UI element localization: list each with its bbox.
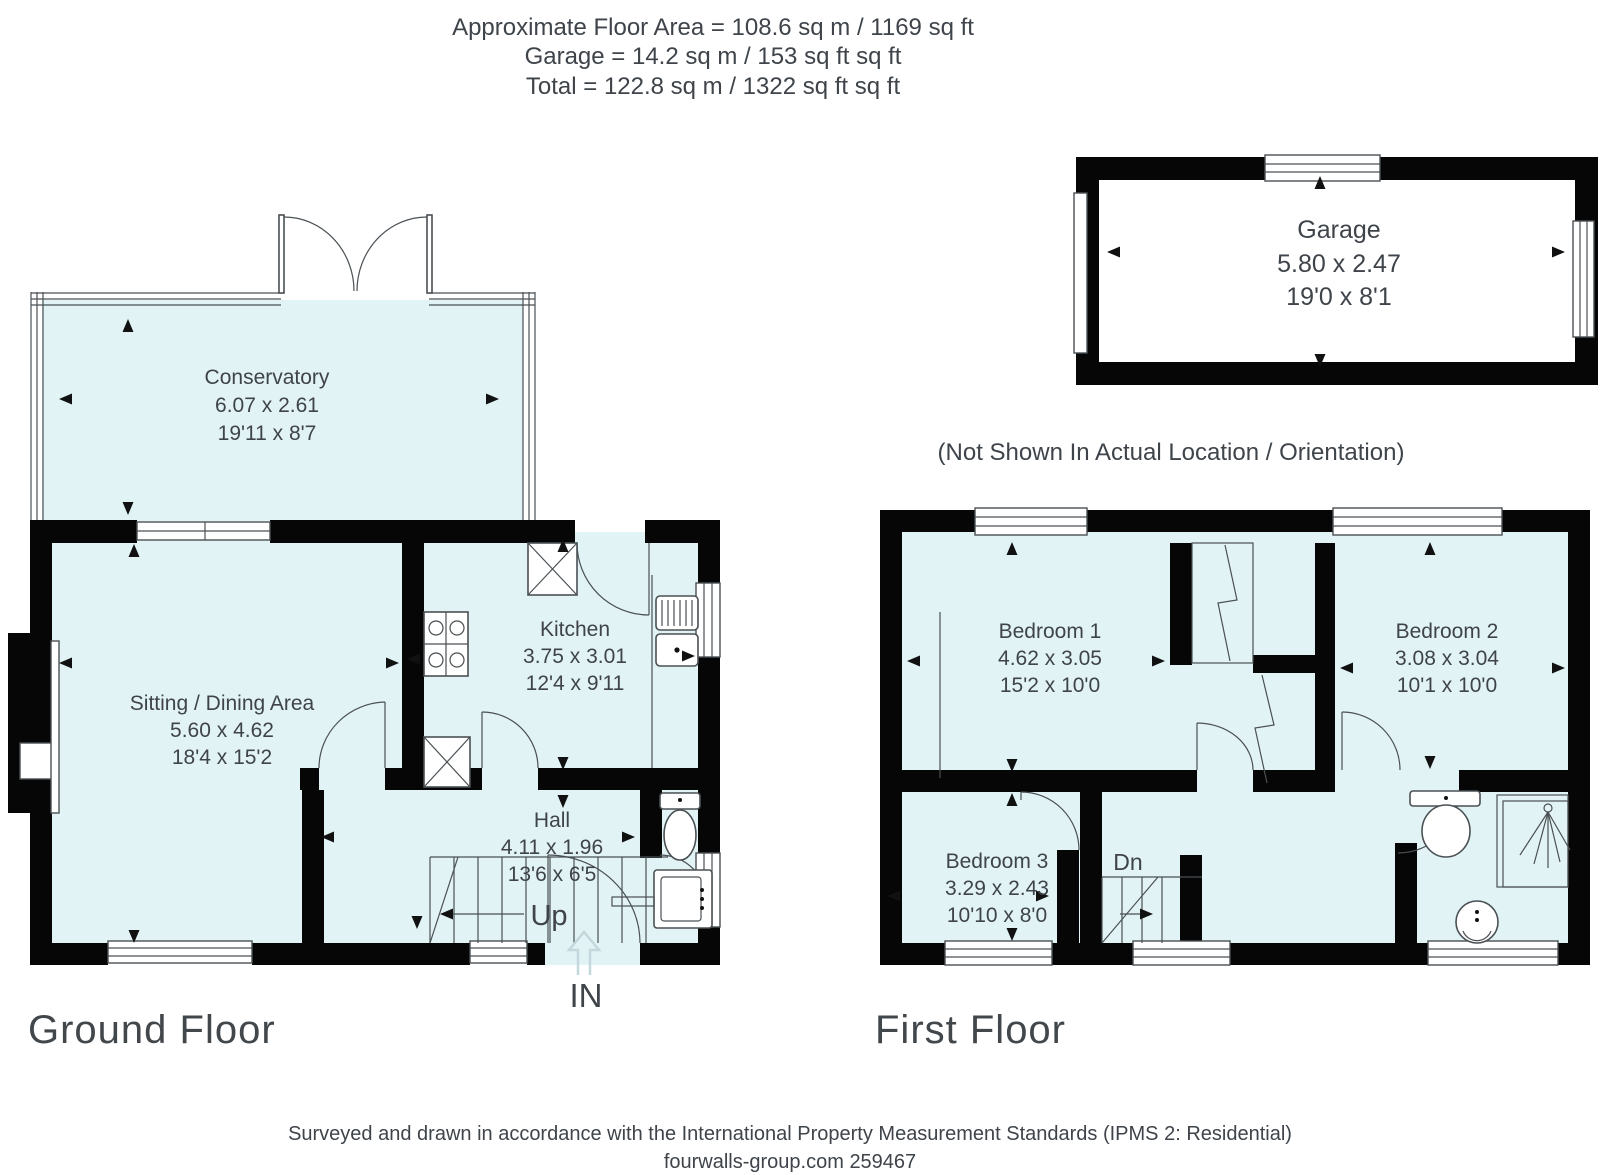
window bbox=[108, 941, 252, 963]
entrance-in-label: IN bbox=[570, 977, 603, 1014]
header-line1: Approximate Floor Area = 108.6 sq m / 11… bbox=[452, 14, 974, 41]
header-area-summary: Approximate Floor Area = 108.6 sq m / 11… bbox=[452, 14, 974, 100]
stairs-up-label: Up bbox=[530, 900, 567, 932]
dimension-arrow-icon bbox=[1552, 247, 1565, 258]
bedroom2-name: Bedroom 2 bbox=[1396, 620, 1499, 643]
sitting-name: Sitting / Dining Area bbox=[130, 692, 315, 715]
bedroom2-imperial-dims: 10'1 x 10'0 bbox=[1397, 674, 1497, 697]
conservatory-imperial-dims: 19'11 x 8'7 bbox=[218, 422, 317, 445]
window bbox=[975, 508, 1087, 535]
garage-plan: Garage 5.80 x 2.47 19'0 x 8'1 bbox=[1074, 155, 1598, 385]
hall-imperial-dims: 13'6 x 6'5 bbox=[508, 863, 597, 886]
entrance-threshold bbox=[545, 943, 640, 965]
window bbox=[1428, 941, 1558, 965]
french-doors bbox=[279, 215, 432, 293]
window bbox=[945, 941, 1052, 965]
conservatory-metric-dims: 6.07 x 2.61 bbox=[215, 394, 319, 417]
window bbox=[696, 583, 720, 657]
garage-window-right bbox=[1573, 221, 1594, 337]
stairs-down-label: Dn bbox=[1113, 849, 1142, 875]
garage-name: Garage bbox=[1297, 216, 1380, 244]
ground-floor-title: Ground Floor bbox=[28, 1008, 276, 1052]
garage-imperial-dims: 19'0 x 8'1 bbox=[1286, 283, 1391, 311]
window bbox=[470, 941, 527, 963]
hall-metric-dims: 4.11 x 1.96 bbox=[501, 836, 603, 859]
garage-wall-bottom bbox=[1076, 362, 1598, 385]
kitchen-name: Kitchen bbox=[540, 618, 610, 641]
hob-icon bbox=[424, 612, 468, 676]
footer: Surveyed and drawn in accordance with th… bbox=[288, 1123, 1292, 1173]
dimension-arrow-icon bbox=[1107, 247, 1120, 258]
cupboard-icon bbox=[424, 737, 470, 787]
basin-icon bbox=[1456, 901, 1498, 943]
garage-window-top bbox=[1265, 155, 1380, 181]
bedroom1-name: Bedroom 1 bbox=[999, 620, 1102, 643]
garage-metric-dims: 5.80 x 2.47 bbox=[1277, 250, 1401, 278]
footer-standards-line: Surveyed and drawn in accordance with th… bbox=[288, 1123, 1292, 1145]
conservatory-name: Conservatory bbox=[205, 366, 330, 389]
sitting-metric-dims: 5.60 x 4.62 bbox=[170, 719, 274, 742]
bedroom3-name: Bedroom 3 bbox=[946, 850, 1049, 873]
bedroom3-metric-dims: 3.29 x 2.43 bbox=[945, 877, 1049, 900]
bedroom3-imperial-dims: 10'10 x 8'0 bbox=[947, 904, 1047, 927]
header-line2: Garage = 14.2 sq m / 153 sq ft sq ft bbox=[525, 43, 902, 70]
kitchen-imperial-dims: 12'4 x 9'11 bbox=[526, 672, 625, 695]
first-floor-plan: Bedroom 1 4.62 x 3.05 15'2 x 10'0 Bedroo… bbox=[880, 508, 1590, 965]
garage-location-note: (Not Shown In Actual Location / Orientat… bbox=[938, 439, 1405, 466]
first-floor-title: First Floor bbox=[875, 1008, 1066, 1052]
bedroom2-metric-dims: 3.08 x 3.04 bbox=[1395, 647, 1499, 670]
kitchen-metric-dims: 3.75 x 3.01 bbox=[523, 645, 627, 668]
bedroom1-imperial-dims: 15'2 x 10'0 bbox=[1000, 674, 1100, 697]
floorplan-drawing: Approximate Floor Area = 108.6 sq m / 11… bbox=[0, 0, 1600, 1175]
window bbox=[137, 522, 270, 540]
sitting-imperial-dims: 18'4 x 15'2 bbox=[172, 746, 272, 769]
bedroom1-metric-dims: 4.62 x 3.05 bbox=[998, 647, 1102, 670]
cupboard-icon bbox=[528, 543, 577, 595]
window bbox=[1133, 941, 1230, 965]
header-line3: Total = 122.8 sq m / 1322 sq ft sq ft bbox=[526, 73, 901, 100]
footer-brand-line: fourwalls-group.com 259467 bbox=[664, 1151, 916, 1173]
garage-door-left bbox=[1074, 193, 1087, 353]
window bbox=[1333, 508, 1502, 535]
ground-floor-plan: Conservatory 6.07 x 2.61 19'11 x 8'7 Sit… bbox=[8, 215, 720, 1014]
hall-name: Hall bbox=[534, 809, 570, 832]
floorplan-page: Approximate Floor Area = 108.6 sq m / 11… bbox=[0, 0, 1600, 1175]
